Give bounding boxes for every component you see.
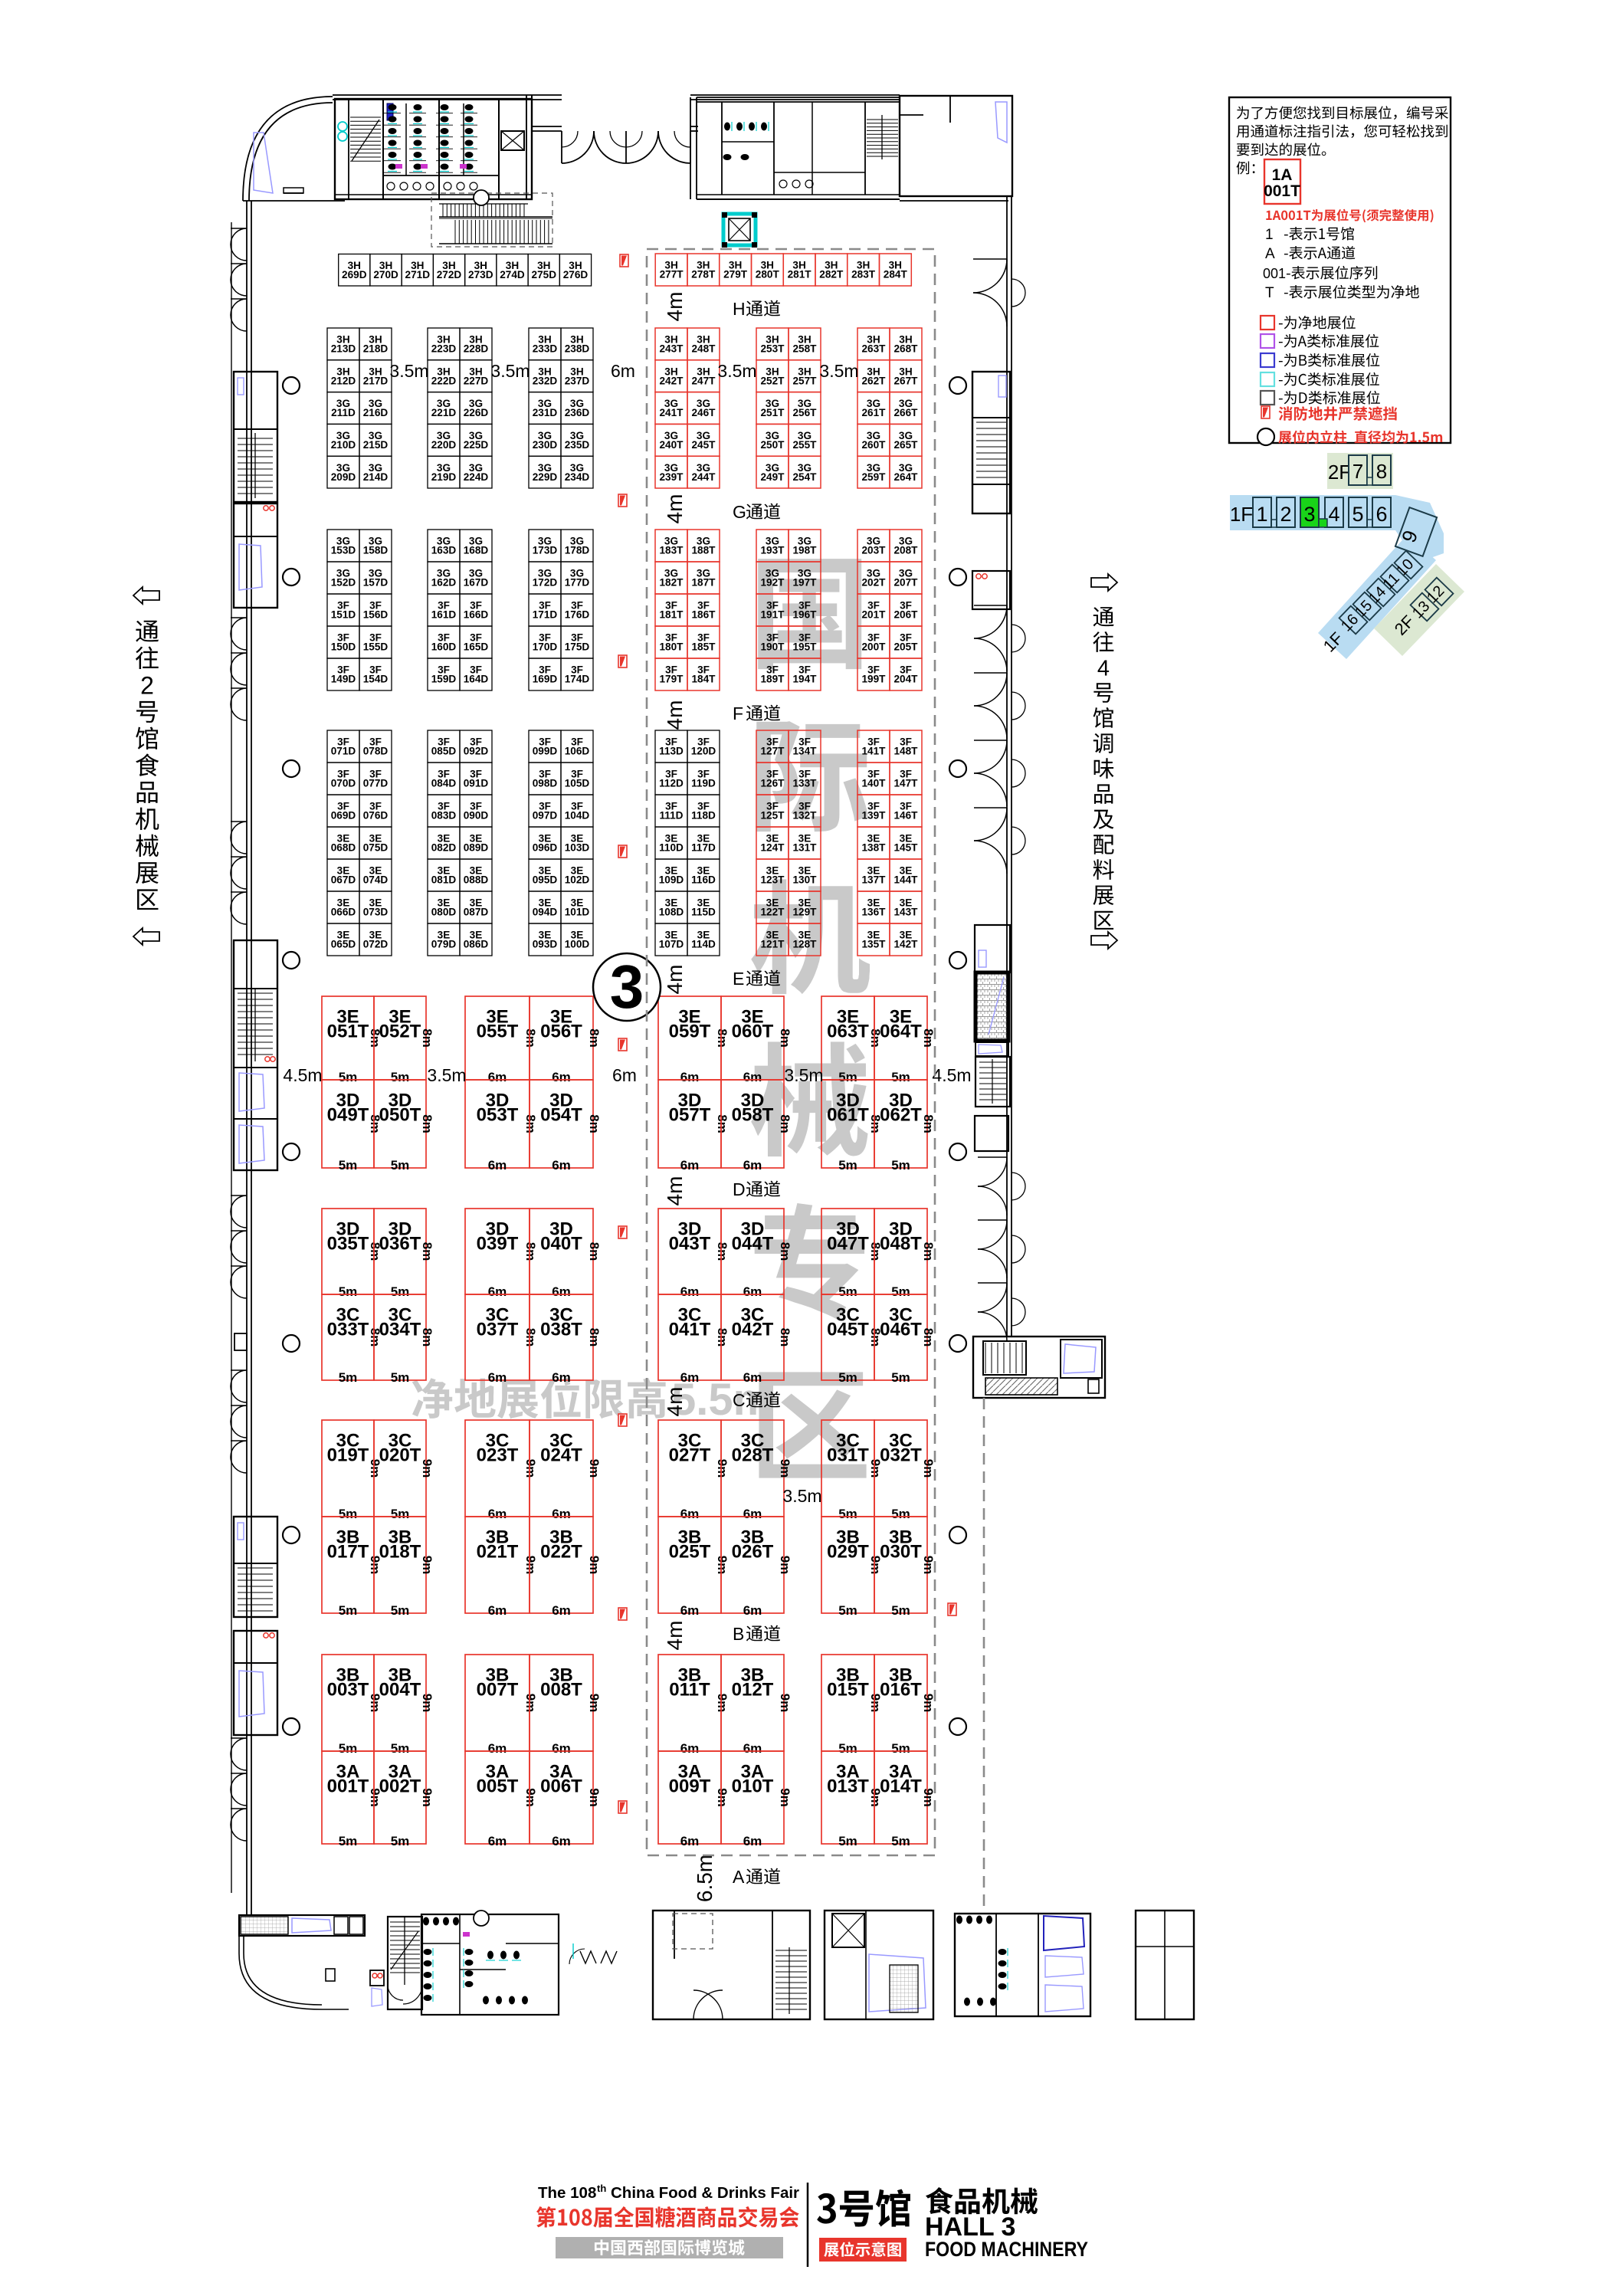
svg-text:245T: 245T bbox=[692, 439, 716, 451]
svg-text:1: 1 bbox=[1265, 227, 1274, 243]
svg-text:6m: 6m bbox=[611, 361, 635, 381]
svg-text:023T: 023T bbox=[477, 1445, 519, 1466]
svg-text:8m: 8m bbox=[778, 1028, 792, 1048]
svg-text:9m: 9m bbox=[420, 1459, 434, 1478]
svg-text:8m: 8m bbox=[420, 1114, 434, 1133]
svg-text:6m: 6m bbox=[743, 1834, 762, 1848]
svg-text:4m: 4m bbox=[663, 1176, 687, 1206]
svg-text:E: E bbox=[733, 969, 744, 989]
svg-text:043T: 043T bbox=[669, 1234, 711, 1255]
svg-text:231D: 231D bbox=[533, 407, 558, 418]
svg-text:115D: 115D bbox=[691, 907, 716, 918]
svg-text:9m: 9m bbox=[420, 1556, 434, 1575]
svg-text:006T: 006T bbox=[540, 1776, 582, 1797]
svg-text:004T: 004T bbox=[379, 1680, 421, 1701]
svg-text:8m: 8m bbox=[921, 1114, 936, 1133]
svg-text:064T: 064T bbox=[880, 1022, 922, 1042]
svg-text:266T: 266T bbox=[894, 407, 919, 418]
svg-text:144T: 144T bbox=[894, 874, 919, 886]
svg-text:1: 1 bbox=[1256, 503, 1267, 526]
svg-text:3.5m: 3.5m bbox=[389, 361, 428, 381]
svg-text:132T: 132T bbox=[793, 810, 818, 822]
svg-text:223D: 223D bbox=[431, 343, 457, 355]
svg-text:6m: 6m bbox=[743, 1070, 762, 1084]
svg-text:6m: 6m bbox=[680, 1370, 700, 1385]
svg-text:283T: 283T bbox=[851, 269, 876, 280]
svg-text:248T: 248T bbox=[692, 343, 716, 355]
svg-text:3.5m: 3.5m bbox=[490, 361, 530, 381]
svg-text:081D: 081D bbox=[431, 874, 457, 886]
svg-text:5m: 5m bbox=[339, 1741, 358, 1756]
svg-text:028T: 028T bbox=[732, 1445, 774, 1466]
svg-text:159D: 159D bbox=[431, 674, 457, 685]
svg-text:126T: 126T bbox=[761, 778, 785, 789]
svg-text:139T: 139T bbox=[862, 810, 887, 822]
svg-text:9m: 9m bbox=[523, 1556, 538, 1575]
svg-text:6m: 6m bbox=[552, 1507, 571, 1521]
svg-text:6m: 6m bbox=[680, 1834, 700, 1848]
svg-text:274D: 274D bbox=[500, 269, 525, 280]
svg-text:6m: 6m bbox=[488, 1507, 507, 1521]
svg-text:3.5m: 3.5m bbox=[784, 1065, 823, 1085]
svg-text:207T: 207T bbox=[894, 577, 919, 589]
svg-text:5m: 5m bbox=[391, 1834, 410, 1848]
svg-text:4.5m: 4.5m bbox=[932, 1065, 971, 1085]
svg-text:177D: 177D bbox=[565, 577, 590, 589]
svg-text:8m: 8m bbox=[587, 1028, 602, 1048]
svg-text:160D: 160D bbox=[431, 641, 457, 653]
svg-text:088D: 088D bbox=[464, 874, 489, 886]
svg-text:021T: 021T bbox=[477, 1542, 519, 1563]
svg-text:5m: 5m bbox=[391, 1284, 410, 1299]
svg-text:079D: 079D bbox=[431, 939, 457, 950]
svg-text:172D: 172D bbox=[533, 577, 558, 589]
svg-text:9m: 9m bbox=[921, 1556, 936, 1575]
svg-text:284T: 284T bbox=[884, 269, 908, 280]
svg-text:6m: 6m bbox=[488, 1834, 507, 1848]
svg-text:040T: 040T bbox=[540, 1234, 582, 1255]
svg-text:033T: 033T bbox=[327, 1320, 369, 1340]
svg-text:249T: 249T bbox=[761, 471, 785, 483]
svg-text:8m: 8m bbox=[587, 1114, 602, 1133]
svg-text:5m: 5m bbox=[891, 1070, 910, 1084]
svg-text:137T: 137T bbox=[862, 874, 887, 886]
svg-text:090D: 090D bbox=[464, 810, 489, 822]
svg-text:B: B bbox=[733, 1624, 744, 1644]
svg-text:F: F bbox=[733, 704, 743, 723]
svg-text:261T: 261T bbox=[862, 407, 887, 418]
svg-text:203T: 203T bbox=[862, 545, 887, 556]
svg-text:T: T bbox=[1265, 285, 1274, 301]
svg-text:048T: 048T bbox=[880, 1234, 922, 1255]
svg-text:149D: 149D bbox=[331, 674, 356, 685]
svg-text:074D: 074D bbox=[363, 874, 389, 886]
svg-text:5m: 5m bbox=[339, 1070, 358, 1084]
svg-text:215D: 215D bbox=[363, 439, 389, 451]
svg-text:1A: 1A bbox=[1272, 166, 1293, 184]
svg-text:200T: 200T bbox=[862, 641, 887, 653]
svg-text:050T: 050T bbox=[379, 1105, 421, 1126]
svg-text:133T: 133T bbox=[793, 778, 818, 789]
svg-text:6m: 6m bbox=[488, 1284, 507, 1299]
svg-text:243T: 243T bbox=[660, 343, 684, 355]
svg-text:069D: 069D bbox=[331, 810, 356, 822]
svg-text:9m: 9m bbox=[715, 1788, 730, 1807]
svg-text:8m: 8m bbox=[420, 1328, 434, 1347]
svg-text:9m: 9m bbox=[420, 1788, 434, 1807]
svg-text:5m: 5m bbox=[339, 1284, 358, 1299]
svg-text:221D: 221D bbox=[431, 407, 457, 418]
svg-text:8: 8 bbox=[1376, 460, 1387, 483]
svg-text:272D: 272D bbox=[437, 269, 462, 280]
svg-text:6m: 6m bbox=[552, 1370, 571, 1385]
svg-text:002T: 002T bbox=[379, 1776, 421, 1797]
svg-text:220D: 220D bbox=[431, 439, 457, 451]
svg-text:142T: 142T bbox=[894, 939, 919, 950]
svg-text:163D: 163D bbox=[431, 545, 457, 556]
svg-text:8m: 8m bbox=[921, 1242, 936, 1261]
svg-text:194T: 194T bbox=[793, 674, 818, 685]
svg-text:116D: 116D bbox=[691, 874, 716, 886]
svg-text:8m: 8m bbox=[420, 1242, 434, 1261]
svg-text:9m: 9m bbox=[921, 1788, 936, 1807]
svg-text:196T: 196T bbox=[793, 609, 818, 621]
svg-text:011T: 011T bbox=[669, 1680, 710, 1701]
svg-text:195T: 195T bbox=[793, 641, 818, 653]
svg-text:211D: 211D bbox=[331, 407, 356, 418]
svg-text:210D: 210D bbox=[331, 439, 356, 451]
svg-text:120D: 120D bbox=[691, 746, 716, 757]
svg-text:109D: 109D bbox=[659, 874, 684, 886]
svg-text:279T: 279T bbox=[723, 269, 748, 280]
svg-text:6m: 6m bbox=[552, 1284, 571, 1299]
svg-text:6m: 6m bbox=[552, 1834, 571, 1848]
svg-text:3.5m: 3.5m bbox=[819, 361, 858, 381]
svg-text:241T: 241T bbox=[660, 407, 684, 418]
svg-text:9m: 9m bbox=[921, 1459, 936, 1478]
svg-text:6m: 6m bbox=[743, 1603, 762, 1618]
svg-text:131T: 131T bbox=[793, 842, 818, 854]
svg-text:197T: 197T bbox=[793, 577, 818, 589]
svg-text:049T: 049T bbox=[327, 1105, 369, 1126]
svg-text:9m: 9m bbox=[587, 1694, 602, 1713]
svg-text:214D: 214D bbox=[363, 471, 389, 483]
svg-text:264T: 264T bbox=[894, 471, 919, 483]
svg-text:265T: 265T bbox=[894, 439, 919, 451]
svg-text:8m: 8m bbox=[715, 1028, 730, 1048]
svg-text:093D: 093D bbox=[533, 939, 558, 950]
svg-text:122T: 122T bbox=[761, 907, 785, 918]
svg-text:3: 3 bbox=[1303, 503, 1315, 526]
svg-text:A: A bbox=[733, 1867, 745, 1887]
svg-text:246T: 246T bbox=[692, 407, 716, 418]
svg-text:072D: 072D bbox=[363, 939, 389, 950]
svg-text:252T: 252T bbox=[761, 375, 785, 386]
svg-text:263T: 263T bbox=[862, 343, 887, 355]
svg-text:108D: 108D bbox=[659, 907, 684, 918]
svg-text:180T: 180T bbox=[660, 641, 684, 653]
svg-text:6m: 6m bbox=[488, 1370, 507, 1385]
svg-text:5m: 5m bbox=[891, 1507, 910, 1521]
svg-text:219D: 219D bbox=[431, 471, 457, 483]
svg-text:7: 7 bbox=[1352, 460, 1363, 483]
svg-text:5m: 5m bbox=[838, 1507, 857, 1521]
svg-text:8m: 8m bbox=[523, 1114, 538, 1133]
svg-text:183T: 183T bbox=[660, 545, 684, 556]
svg-text:123T: 123T bbox=[761, 874, 785, 886]
svg-text:8m: 8m bbox=[587, 1242, 602, 1261]
svg-text:8m: 8m bbox=[921, 1028, 936, 1048]
svg-text:8m: 8m bbox=[778, 1328, 792, 1347]
svg-text:217D: 217D bbox=[363, 375, 389, 386]
svg-text:150D: 150D bbox=[331, 641, 356, 653]
svg-text:187T: 187T bbox=[692, 577, 716, 589]
svg-text:184T: 184T bbox=[692, 674, 716, 685]
svg-text:162D: 162D bbox=[431, 577, 457, 589]
svg-text:037T: 037T bbox=[477, 1320, 519, 1340]
svg-text:027T: 027T bbox=[669, 1445, 711, 1466]
svg-text:192T: 192T bbox=[761, 577, 785, 589]
svg-text:053T: 053T bbox=[477, 1105, 519, 1126]
svg-text:9m: 9m bbox=[715, 1556, 730, 1575]
svg-text:216D: 216D bbox=[363, 407, 389, 418]
svg-text:262T: 262T bbox=[862, 375, 887, 386]
svg-text:059T: 059T bbox=[669, 1022, 711, 1042]
svg-text:8m: 8m bbox=[921, 1328, 936, 1347]
svg-text:135T: 135T bbox=[862, 939, 887, 950]
svg-text:234D: 234D bbox=[565, 471, 590, 483]
svg-text:202T: 202T bbox=[862, 577, 887, 589]
svg-text:001T: 001T bbox=[1264, 182, 1300, 200]
svg-text:101D: 101D bbox=[565, 907, 590, 918]
svg-text:136T: 136T bbox=[862, 907, 887, 918]
svg-text:6m: 6m bbox=[488, 1070, 507, 1084]
svg-text:067D: 067D bbox=[331, 874, 356, 886]
svg-text:206T: 206T bbox=[894, 609, 919, 621]
svg-text:001: 001 bbox=[1263, 266, 1286, 281]
svg-text:005T: 005T bbox=[477, 1776, 519, 1797]
svg-text:270D: 270D bbox=[373, 269, 398, 280]
svg-text:212D: 212D bbox=[331, 375, 356, 386]
svg-text:259T: 259T bbox=[862, 471, 887, 483]
svg-text:031T: 031T bbox=[827, 1445, 869, 1466]
svg-text:083D: 083D bbox=[431, 810, 457, 822]
svg-text:186T: 186T bbox=[692, 609, 716, 621]
svg-text:198T: 198T bbox=[793, 545, 818, 556]
svg-text:146T: 146T bbox=[894, 810, 919, 822]
svg-text:6m: 6m bbox=[552, 1603, 571, 1618]
svg-text:9m: 9m bbox=[523, 1694, 538, 1713]
svg-text:9m: 9m bbox=[778, 1694, 792, 1713]
svg-text:3: 3 bbox=[610, 953, 644, 1021]
svg-text:The 108: The 108 bbox=[538, 2184, 596, 2202]
svg-text:5m: 5m bbox=[391, 1603, 410, 1618]
svg-text:095D: 095D bbox=[533, 874, 558, 886]
svg-text:247T: 247T bbox=[692, 375, 716, 386]
svg-text:8m: 8m bbox=[587, 1328, 602, 1347]
svg-text:258T: 258T bbox=[793, 343, 818, 355]
svg-text:201T: 201T bbox=[862, 609, 887, 621]
svg-text:9m: 9m bbox=[715, 1459, 730, 1478]
svg-text:278T: 278T bbox=[691, 269, 716, 280]
svg-text:5m: 5m bbox=[838, 1834, 857, 1848]
svg-text:155D: 155D bbox=[363, 641, 389, 653]
svg-text:082D: 082D bbox=[431, 842, 457, 854]
svg-text:6: 6 bbox=[1375, 503, 1387, 526]
svg-text:5m: 5m bbox=[391, 1158, 410, 1173]
svg-text:121T: 121T bbox=[761, 939, 785, 950]
svg-text:168D: 168D bbox=[464, 545, 489, 556]
svg-text:5m: 5m bbox=[391, 1741, 410, 1756]
svg-text:269D: 269D bbox=[342, 269, 367, 280]
svg-text:8m: 8m bbox=[420, 1028, 434, 1048]
svg-text:114D: 114D bbox=[691, 939, 716, 950]
svg-text:4.5m: 4.5m bbox=[283, 1065, 322, 1085]
svg-text:9m: 9m bbox=[587, 1459, 602, 1478]
svg-text:260T: 260T bbox=[862, 439, 887, 451]
svg-text:042T: 042T bbox=[732, 1320, 774, 1340]
svg-text:057T: 057T bbox=[669, 1105, 711, 1126]
svg-text:065D: 065D bbox=[331, 939, 356, 950]
svg-text:182T: 182T bbox=[660, 577, 684, 589]
svg-text:8m: 8m bbox=[715, 1328, 730, 1347]
svg-text:148T: 148T bbox=[894, 746, 919, 757]
svg-text:8m: 8m bbox=[523, 1328, 538, 1347]
svg-text:052T: 052T bbox=[379, 1022, 421, 1042]
svg-text:141T: 141T bbox=[862, 746, 887, 757]
svg-text:237D: 237D bbox=[565, 375, 590, 386]
svg-text:213D: 213D bbox=[331, 343, 356, 355]
svg-text:169D: 169D bbox=[533, 674, 558, 685]
svg-text:110D: 110D bbox=[659, 842, 684, 854]
svg-text:199T: 199T bbox=[862, 674, 887, 685]
svg-text:134T: 134T bbox=[793, 746, 818, 757]
svg-text:119D: 119D bbox=[691, 778, 716, 789]
svg-text:8m: 8m bbox=[523, 1028, 538, 1048]
svg-text:104D: 104D bbox=[565, 810, 590, 822]
svg-text:129T: 129T bbox=[793, 907, 818, 918]
svg-text:5m: 5m bbox=[339, 1507, 358, 1521]
svg-text:087D: 087D bbox=[464, 907, 489, 918]
svg-text:001T: 001T bbox=[327, 1776, 369, 1797]
svg-text:6m: 6m bbox=[488, 1158, 507, 1173]
svg-text:138T: 138T bbox=[862, 842, 887, 854]
svg-text:257T: 257T bbox=[793, 375, 818, 386]
svg-text:277T: 277T bbox=[660, 269, 684, 280]
svg-text:167D: 167D bbox=[464, 577, 489, 589]
svg-text:6.5m: 6.5m bbox=[693, 1855, 716, 1902]
svg-text:4m: 4m bbox=[663, 1387, 687, 1417]
svg-text:143T: 143T bbox=[894, 907, 919, 918]
svg-text:100D: 100D bbox=[565, 939, 590, 950]
svg-text:054T: 054T bbox=[540, 1105, 582, 1126]
svg-text:225D: 225D bbox=[464, 439, 489, 451]
svg-text:193T: 193T bbox=[761, 545, 785, 556]
svg-text:6m: 6m bbox=[552, 1158, 571, 1173]
svg-text:107D: 107D bbox=[659, 939, 684, 950]
svg-text:156D: 156D bbox=[363, 609, 389, 621]
svg-text:032T: 032T bbox=[880, 1445, 922, 1466]
svg-text:111D: 111D bbox=[660, 810, 684, 822]
svg-text:251T: 251T bbox=[761, 407, 785, 418]
svg-text:038T: 038T bbox=[540, 1320, 582, 1340]
svg-text:236D: 236D bbox=[565, 407, 590, 418]
svg-text:9m: 9m bbox=[778, 1556, 792, 1575]
svg-text:015T: 015T bbox=[827, 1680, 869, 1701]
svg-text:127T: 127T bbox=[761, 746, 785, 757]
svg-text:240T: 240T bbox=[660, 439, 684, 451]
svg-text:5: 5 bbox=[1352, 503, 1363, 526]
svg-text:003T: 003T bbox=[327, 1680, 369, 1701]
svg-text:9m: 9m bbox=[715, 1694, 730, 1713]
svg-text:275D: 275D bbox=[532, 269, 557, 280]
svg-text:034T: 034T bbox=[379, 1320, 421, 1340]
svg-text:5m: 5m bbox=[391, 1370, 410, 1385]
svg-text:046T: 046T bbox=[880, 1320, 922, 1340]
svg-text:5m: 5m bbox=[838, 1370, 857, 1385]
svg-text:016T: 016T bbox=[880, 1680, 922, 1701]
svg-text:5m: 5m bbox=[891, 1370, 910, 1385]
svg-text:8m: 8m bbox=[523, 1242, 538, 1261]
svg-text:188T: 188T bbox=[692, 545, 716, 556]
svg-text:076D: 076D bbox=[363, 810, 389, 822]
svg-text:174D: 174D bbox=[565, 674, 590, 685]
svg-text:282T: 282T bbox=[819, 269, 844, 280]
svg-text:6m: 6m bbox=[680, 1507, 700, 1521]
svg-text:5m: 5m bbox=[891, 1603, 910, 1618]
svg-text:9m: 9m bbox=[523, 1788, 538, 1807]
svg-text:161D: 161D bbox=[431, 609, 457, 621]
svg-text:280T: 280T bbox=[756, 269, 780, 280]
svg-text:007T: 007T bbox=[477, 1680, 519, 1701]
svg-text:235D: 235D bbox=[565, 439, 590, 451]
svg-text:112D: 112D bbox=[659, 778, 684, 789]
svg-text:H: H bbox=[733, 299, 746, 319]
svg-text:5m: 5m bbox=[339, 1370, 358, 1385]
svg-text:128T: 128T bbox=[793, 939, 818, 950]
svg-text:012T: 012T bbox=[732, 1680, 774, 1701]
svg-text:5m: 5m bbox=[339, 1158, 358, 1173]
svg-text:4m: 4m bbox=[663, 700, 687, 730]
svg-text:105D: 105D bbox=[565, 778, 590, 789]
svg-text:224D: 224D bbox=[464, 471, 489, 483]
svg-text:153D: 153D bbox=[331, 545, 356, 556]
svg-text:044T: 044T bbox=[732, 1234, 774, 1255]
svg-text:6m: 6m bbox=[743, 1741, 762, 1756]
svg-text:175D: 175D bbox=[565, 641, 590, 653]
svg-text:176D: 176D bbox=[565, 609, 590, 621]
svg-text:9m: 9m bbox=[420, 1694, 434, 1713]
svg-text:025T: 025T bbox=[669, 1542, 711, 1563]
svg-text:6m: 6m bbox=[680, 1741, 700, 1756]
svg-text:239T: 239T bbox=[660, 471, 684, 483]
svg-text:C: C bbox=[733, 1390, 746, 1410]
svg-text:5m: 5m bbox=[838, 1741, 857, 1756]
svg-text:071D: 071D bbox=[331, 746, 356, 757]
svg-text:281T: 281T bbox=[788, 269, 812, 280]
svg-text:140T: 140T bbox=[862, 778, 887, 789]
svg-text:232D: 232D bbox=[533, 375, 558, 386]
svg-text:029T: 029T bbox=[827, 1542, 869, 1563]
svg-text:084D: 084D bbox=[431, 778, 457, 789]
svg-text:5m: 5m bbox=[339, 1834, 358, 1848]
svg-text:068D: 068D bbox=[331, 842, 356, 854]
svg-text:5m: 5m bbox=[391, 1070, 410, 1084]
svg-text:158D: 158D bbox=[363, 545, 389, 556]
svg-text:106D: 106D bbox=[565, 746, 590, 757]
svg-text:6m: 6m bbox=[612, 1065, 637, 1085]
svg-text:4m: 4m bbox=[663, 965, 687, 995]
